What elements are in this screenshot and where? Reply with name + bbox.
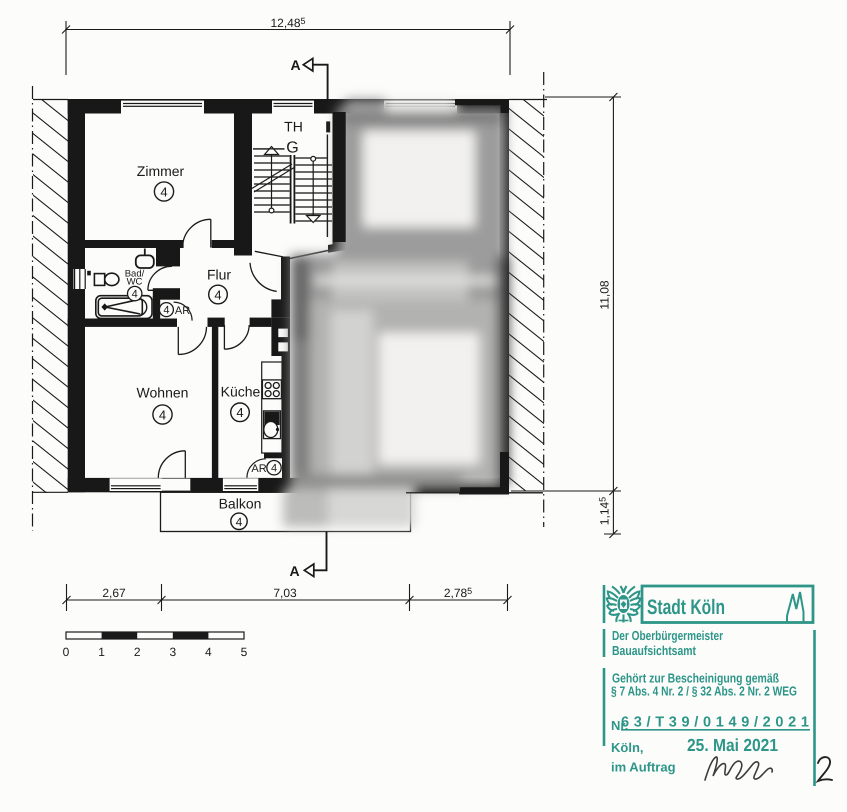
svg-text:4: 4 (236, 405, 243, 420)
svg-text:0: 0 (63, 645, 70, 659)
svg-text:Bauaufsichtsamt: Bauaufsichtsamt (612, 643, 697, 658)
svg-text:4: 4 (159, 407, 166, 422)
svg-text:7,03: 7,03 (273, 586, 297, 600)
svg-text:4: 4 (163, 305, 169, 317)
svg-text:§ 7 Abs. 4 Nr. 2 / § 32 Abs. 2: § 7 Abs. 4 Nr. 2 / § 32 Abs. 2 Nr. 2 WEG (611, 684, 797, 699)
svg-text:TH: TH (284, 119, 303, 135)
svg-text:im Auftrag: im Auftrag (611, 760, 676, 775)
svg-text:G: G (286, 140, 298, 157)
svg-text:25. Mai 2021: 25. Mai 2021 (687, 735, 778, 755)
svg-text:AR: AR (175, 305, 190, 317)
svg-text:4: 4 (214, 287, 221, 302)
svg-text:12,485: 12,485 (270, 16, 305, 30)
svg-text:4: 4 (271, 463, 277, 475)
svg-text:3: 3 (169, 645, 176, 659)
svg-text:1: 1 (98, 645, 105, 659)
svg-text:A: A (291, 57, 301, 73)
svg-text:Zimmer: Zimmer (137, 163, 185, 179)
svg-text:Stadt Köln: Stadt Köln (647, 596, 725, 619)
svg-text:Wohnen: Wohnen (137, 385, 189, 401)
svg-text:A: A (290, 563, 300, 579)
svg-text:Küche: Küche (221, 384, 261, 400)
svg-text:11,08: 11,08 (598, 280, 612, 309)
svg-text:AR: AR (251, 463, 266, 475)
svg-text:5: 5 (241, 645, 248, 659)
svg-text:4: 4 (205, 645, 212, 659)
svg-text:63/T39/0149/2021: 63/T39/0149/2021 (621, 715, 809, 731)
svg-text:Balkon: Balkon (219, 496, 262, 512)
svg-text:4: 4 (160, 184, 167, 199)
svg-text:Flur: Flur (207, 267, 231, 283)
svg-text:2,67: 2,67 (102, 586, 126, 600)
svg-text:4: 4 (236, 515, 243, 529)
svg-text:Der Oberbürgermeister: Der Oberbürgermeister (612, 628, 723, 643)
svg-text:2: 2 (134, 645, 141, 659)
svg-text:Köln,: Köln, (611, 740, 644, 755)
svg-text:4: 4 (132, 289, 138, 301)
